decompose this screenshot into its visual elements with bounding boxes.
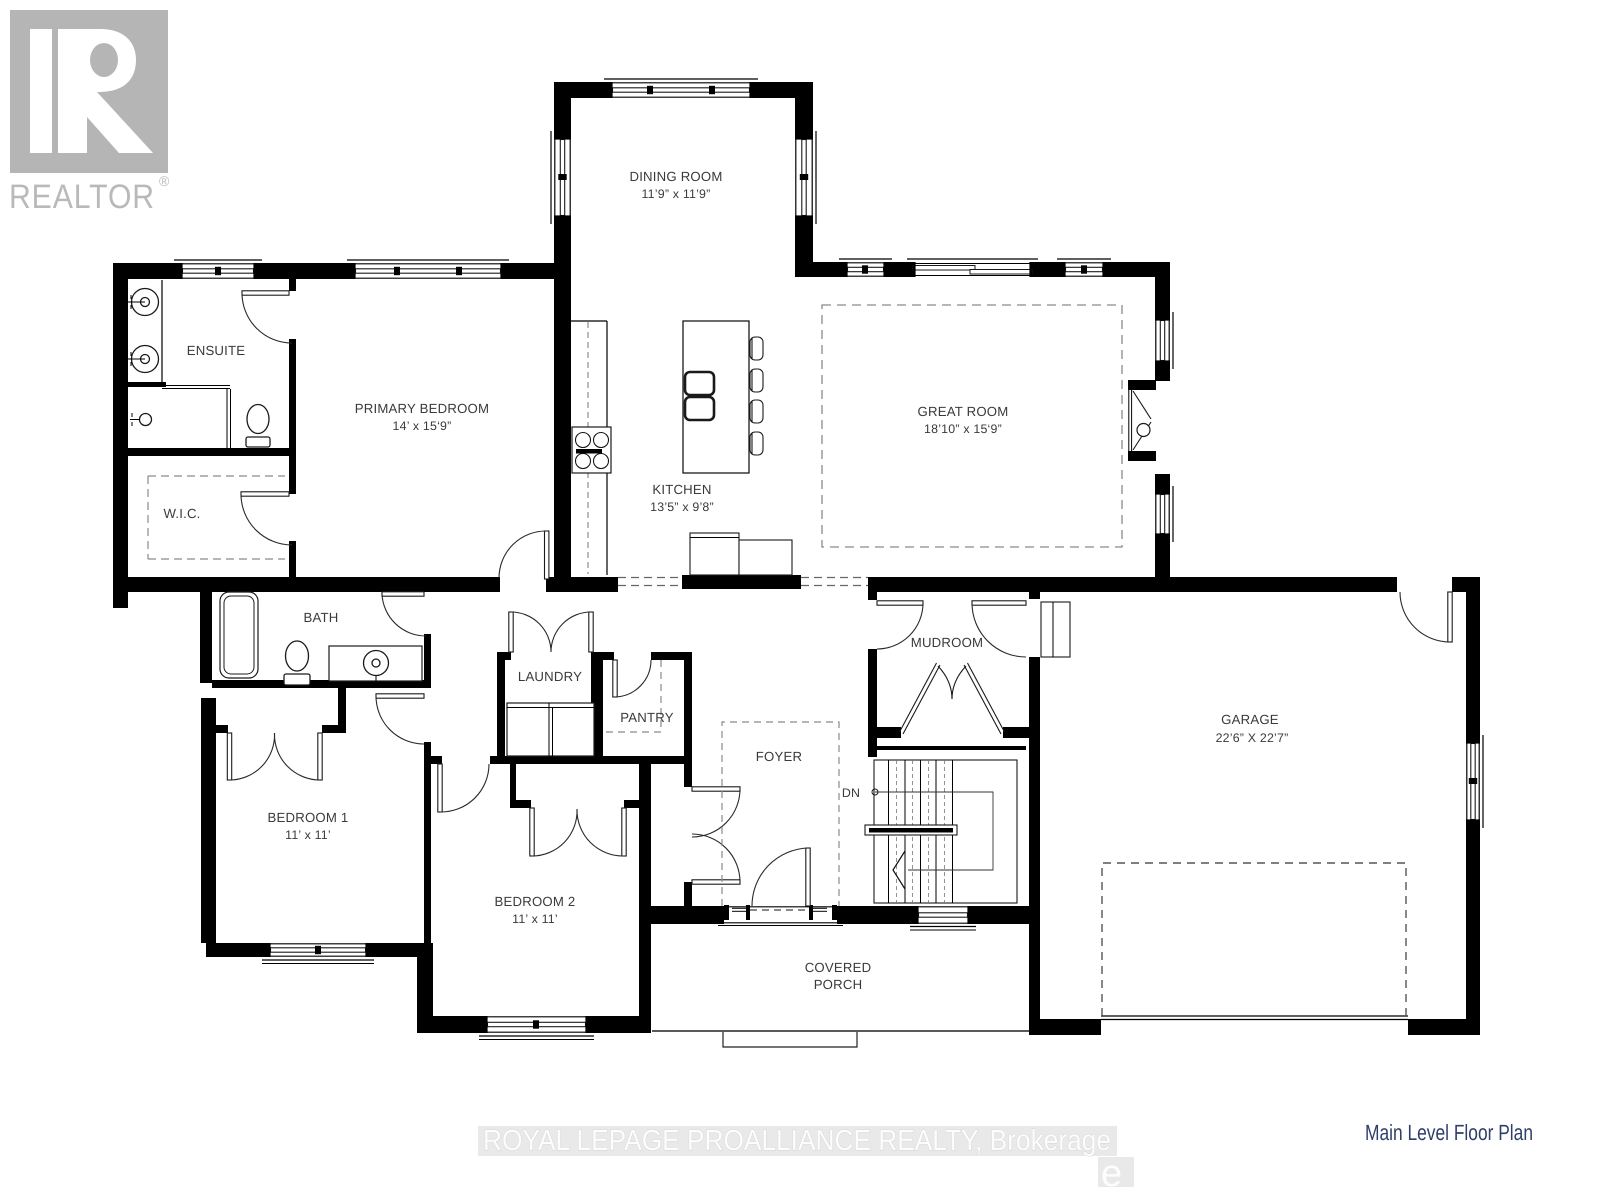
svg-text:14’ x 15‘9”: 14’ x 15‘9” <box>393 419 452 433</box>
svg-text:FOYER: FOYER <box>756 749 802 764</box>
svg-text:BEDROOM 1: BEDROOM 1 <box>268 810 349 825</box>
svg-text:REALTOR: REALTOR <box>9 178 155 216</box>
svg-text:MUDROOM: MUDROOM <box>911 635 983 650</box>
svg-text:e: e <box>1101 1153 1122 1195</box>
svg-text:22’6” X 22’7”: 22’6” X 22’7” <box>1216 731 1289 745</box>
svg-text:18’10” x 15‘9”: 18’10” x 15‘9” <box>924 422 1002 436</box>
svg-text:BEDROOM 2: BEDROOM 2 <box>495 894 576 909</box>
svg-text:GREAT ROOM: GREAT ROOM <box>918 404 1009 419</box>
svg-text:PANTRY: PANTRY <box>620 710 673 725</box>
svg-text:®: ® <box>159 173 170 189</box>
svg-text:DN: DN <box>842 786 860 800</box>
svg-text:PRIMARY BEDROOM: PRIMARY BEDROOM <box>355 401 489 416</box>
svg-text:Main Level Floor Plan: Main Level Floor Plan <box>1365 1120 1533 1145</box>
svg-text:W.I.C.: W.I.C. <box>163 506 200 521</box>
svg-text:GARAGE: GARAGE <box>1221 712 1279 727</box>
svg-text:11’ x 11’: 11’ x 11’ <box>512 912 558 926</box>
svg-text:COVERED: COVERED <box>805 960 872 975</box>
svg-text:PORCH: PORCH <box>814 977 863 992</box>
svg-text:11’ x 11’: 11’ x 11’ <box>285 828 331 842</box>
svg-text:LAUNDRY: LAUNDRY <box>518 669 582 684</box>
svg-text:13’5” x 9’8”: 13’5” x 9’8” <box>650 500 714 514</box>
svg-text:ENSUITE: ENSUITE <box>187 343 246 358</box>
svg-text:KITCHEN: KITCHEN <box>652 482 711 497</box>
svg-text:11’9” x 11’9”: 11’9” x 11’9” <box>642 187 711 201</box>
svg-text:ROYAL LEPAGE PROALLIANCE REALT: ROYAL LEPAGE PROALLIANCE REALTY, Brokera… <box>483 1125 1111 1157</box>
svg-text:BATH: BATH <box>304 610 339 625</box>
svg-text:DINING ROOM: DINING ROOM <box>629 169 722 184</box>
